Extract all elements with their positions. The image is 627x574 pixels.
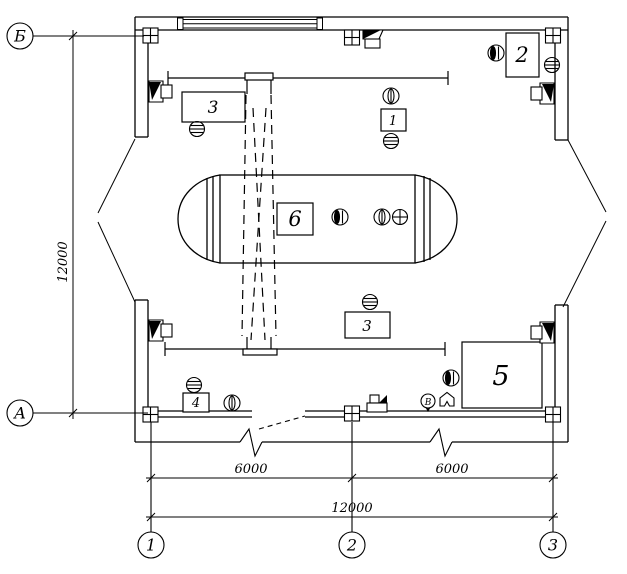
equipment-label-3-bottom: 3 <box>362 317 372 335</box>
window-strip <box>178 18 323 30</box>
axis-label-b: Б <box>13 27 26 46</box>
column-3-b <box>546 28 561 43</box>
equipment-box-6: 6 <box>277 203 313 235</box>
axis-row-a: А <box>7 400 148 426</box>
axis-label-a: А <box>13 404 26 423</box>
lamp-ribbed-4 <box>363 295 378 310</box>
lamp-ribbed-2 <box>384 134 399 149</box>
lamp-bars-3 <box>332 209 348 225</box>
dim-text-bottom-total: 12000 <box>331 501 372 516</box>
column-1-a <box>143 407 158 422</box>
axis-label-1: 1 <box>146 536 156 555</box>
equipment-label-5: 5 <box>492 361 509 392</box>
equipment-box-1: 1 <box>381 109 406 131</box>
equipment-box-4: 4 <box>183 393 209 412</box>
equipment-label-4: 4 <box>191 396 200 411</box>
lamp-ribbed-3 <box>545 58 560 73</box>
bay-right-lower <box>563 221 606 307</box>
floodlight-right-bottom <box>531 322 554 343</box>
floodlight-right-top <box>531 83 554 104</box>
column-1-b <box>143 28 158 43</box>
column-3-a <box>546 407 561 422</box>
lamp-lens-2 <box>224 395 240 411</box>
bay-left-upper <box>98 139 135 213</box>
hoist-carriage-top <box>245 73 273 80</box>
tank-head-left <box>178 175 220 263</box>
dimension-lines: 12000 6000 6000 12000 <box>56 30 558 521</box>
equipment-boxes: 3 1 2 6 3 5 4 <box>182 33 542 412</box>
hoist-carriage-bottom <box>243 349 277 355</box>
lamp-bars-1 <box>488 45 504 61</box>
lamp-crosshair <box>393 210 408 225</box>
circle-b-symbol: В <box>421 394 435 412</box>
column-2-a <box>345 406 360 421</box>
hoist-path <box>242 73 277 355</box>
axis-label-3: 3 <box>548 536 558 555</box>
fan-unit-top <box>363 30 383 48</box>
axis-label-2: 2 <box>346 536 357 555</box>
dim-left-vertical: 12000 <box>56 30 77 419</box>
floodlight-left-bottom <box>149 320 172 341</box>
dim-text-span-1-2: 6000 <box>234 462 267 477</box>
equipment-box-2: 2 <box>506 33 539 77</box>
equipment-label-1: 1 <box>389 114 397 129</box>
misc-symbols: В <box>421 393 454 413</box>
equipment-label-3-top: 3 <box>208 98 219 118</box>
equipment-label-6: 6 <box>288 207 301 231</box>
axis-row-b: Б <box>7 23 144 49</box>
hoist-dashed-lines <box>242 95 276 340</box>
lamp-lens-1 <box>383 88 399 104</box>
break-symbol-right <box>430 429 452 456</box>
bay-sides <box>98 139 606 307</box>
gate-leaf-dashed <box>259 416 305 429</box>
circle-b-letter: В <box>424 398 432 408</box>
equipment-box-5: 5 <box>462 342 542 408</box>
fan-unit-bottom <box>367 395 387 412</box>
lamp-ribbed-5 <box>187 378 202 393</box>
monorail-top <box>168 71 448 85</box>
floor-plan-drawing: Б А 1 2 3 12000 <box>0 0 627 574</box>
break-symbol-left <box>240 429 262 456</box>
bay-right-upper <box>568 140 606 212</box>
tank-head-right <box>415 175 457 263</box>
dim-text-left-total: 12000 <box>56 241 71 282</box>
lamp-ribbed-1 <box>190 122 205 137</box>
equipment-label-2: 2 <box>514 43 528 67</box>
lamp-bars-2 <box>443 370 459 386</box>
monorail-bottom <box>165 342 445 356</box>
dim-text-span-2-3: 6000 <box>435 462 468 477</box>
column-2-b <box>345 30 360 45</box>
drawing-canvas: Б А 1 2 3 12000 <box>0 0 627 574</box>
equipment-box-3-bottom: 3 <box>345 312 390 338</box>
window-post-right <box>317 18 323 30</box>
bay-left-lower <box>98 222 135 302</box>
equipment-box-3-top: 3 <box>182 92 245 122</box>
tank-body <box>220 175 415 263</box>
house-symbol <box>440 393 454 407</box>
window-post-left <box>178 18 184 30</box>
lamp-lens-3 <box>374 209 390 225</box>
tank-vessel <box>178 175 457 263</box>
